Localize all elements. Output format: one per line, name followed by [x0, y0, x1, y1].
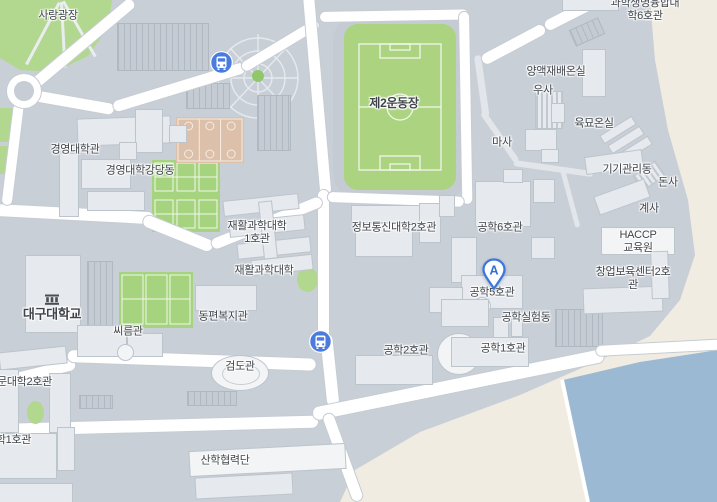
label-biz-hall[interactable]: 경영대학관: [50, 144, 99, 157]
building: [58, 428, 74, 470]
basketball-courts: [176, 117, 244, 163]
label-bldg1[interactable]: 대학1호관: [0, 434, 31, 447]
road: [32, 90, 115, 115]
label-sanhak[interactable]: 산학협력단: [200, 455, 249, 468]
map-canvas[interactable]: 사랑광장 경영대학관 경영대학강당동 제2운동장 과학생명융합대학6호관 양액재…: [0, 0, 717, 502]
building: [552, 104, 564, 122]
label-humanities2[interactable]: 문대학2호관: [0, 376, 52, 389]
footpath: [513, 160, 593, 177]
building: [476, 182, 530, 226]
label-incubator2[interactable]: 창업보육센터2호관: [591, 266, 675, 292]
label-nutrient-greenhouse[interactable]: 양액재배온실: [527, 66, 586, 79]
parking-lot: [80, 396, 112, 408]
label-eng6[interactable]: 공학6호관: [477, 222, 522, 235]
parking-lot: [556, 310, 602, 346]
label-daegu-univ[interactable]: 대구대학교: [23, 306, 81, 321]
parking-lot: [118, 24, 208, 70]
building: [120, 143, 136, 159]
building: [196, 286, 256, 310]
footpath: [474, 55, 490, 117]
label-east-welfare[interactable]: 동편복지관: [198, 311, 247, 324]
label-sci6[interactable]: 과학생명융합대학6호관: [609, 0, 681, 23]
svg-text:A: A: [489, 264, 498, 278]
footpath: [560, 169, 580, 228]
location-pin-A[interactable]: A: [480, 258, 508, 291]
tree-cluster: [297, 267, 318, 292]
label-eng-lab[interactable]: 공학실험동: [501, 312, 550, 325]
tree-cluster: [27, 401, 44, 424]
label-field2[interactable]: 제2운동장: [369, 96, 418, 110]
road: [480, 23, 547, 66]
label-info2[interactable]: 정보통신대학2호관: [352, 222, 436, 235]
label-haccp[interactable]: HACCP 교육원: [619, 229, 656, 255]
label-biz-auditorium[interactable]: 경영대학강당동: [106, 165, 175, 178]
building: [583, 50, 605, 96]
building: [0, 484, 72, 502]
building: [542, 150, 558, 162]
bus-stop-icon[interactable]: [309, 330, 332, 353]
parking-lot: [570, 19, 604, 46]
road: [459, 12, 472, 204]
label-rehab1[interactable]: 재활과학대학 1호관: [228, 220, 287, 246]
label-seedling-greenhouse[interactable]: 육묘온실: [574, 118, 613, 131]
label-equipment-bldg[interactable]: 기기관리동: [602, 164, 651, 177]
building: [118, 345, 133, 360]
school-icon: [45, 294, 59, 305]
road: [303, 0, 331, 195]
roundabout-island: [14, 81, 34, 101]
label-eng1[interactable]: 공학1호관: [480, 343, 525, 356]
bus-stop-icon[interactable]: [210, 51, 233, 74]
tennis-courts: [119, 272, 193, 328]
parking-lot: [88, 262, 112, 332]
label-horse-stable[interactable]: 마사: [492, 137, 512, 150]
building: [442, 300, 488, 326]
building: [196, 474, 293, 499]
road: [0, 416, 318, 436]
building: [60, 154, 78, 216]
building: [88, 192, 144, 210]
label-pig-shed[interactable]: 돈사: [658, 177, 678, 190]
building: [526, 130, 556, 150]
parking-lot: [258, 96, 290, 150]
parking-lot: [188, 392, 236, 405]
building: [136, 110, 162, 152]
building: [504, 170, 522, 182]
label-chicken-shed[interactable]: 계사: [639, 203, 659, 216]
label-cow-shed[interactable]: 우사: [533, 85, 553, 98]
building: [356, 356, 432, 384]
label-ssireum[interactable]: 씨름관: [113, 326, 142, 339]
label-kendo[interactable]: 검도관: [225, 361, 254, 374]
building: [440, 196, 454, 216]
label-eng2[interactable]: 공학2호관: [383, 345, 428, 358]
building: [50, 374, 70, 432]
building: [532, 238, 554, 258]
building: [534, 180, 554, 202]
label-rehab[interactable]: 재활과학대학: [235, 265, 294, 278]
label-sarang-plaza[interactable]: 사랑광장: [38, 10, 77, 23]
building: [170, 126, 186, 142]
road: [318, 190, 329, 337]
